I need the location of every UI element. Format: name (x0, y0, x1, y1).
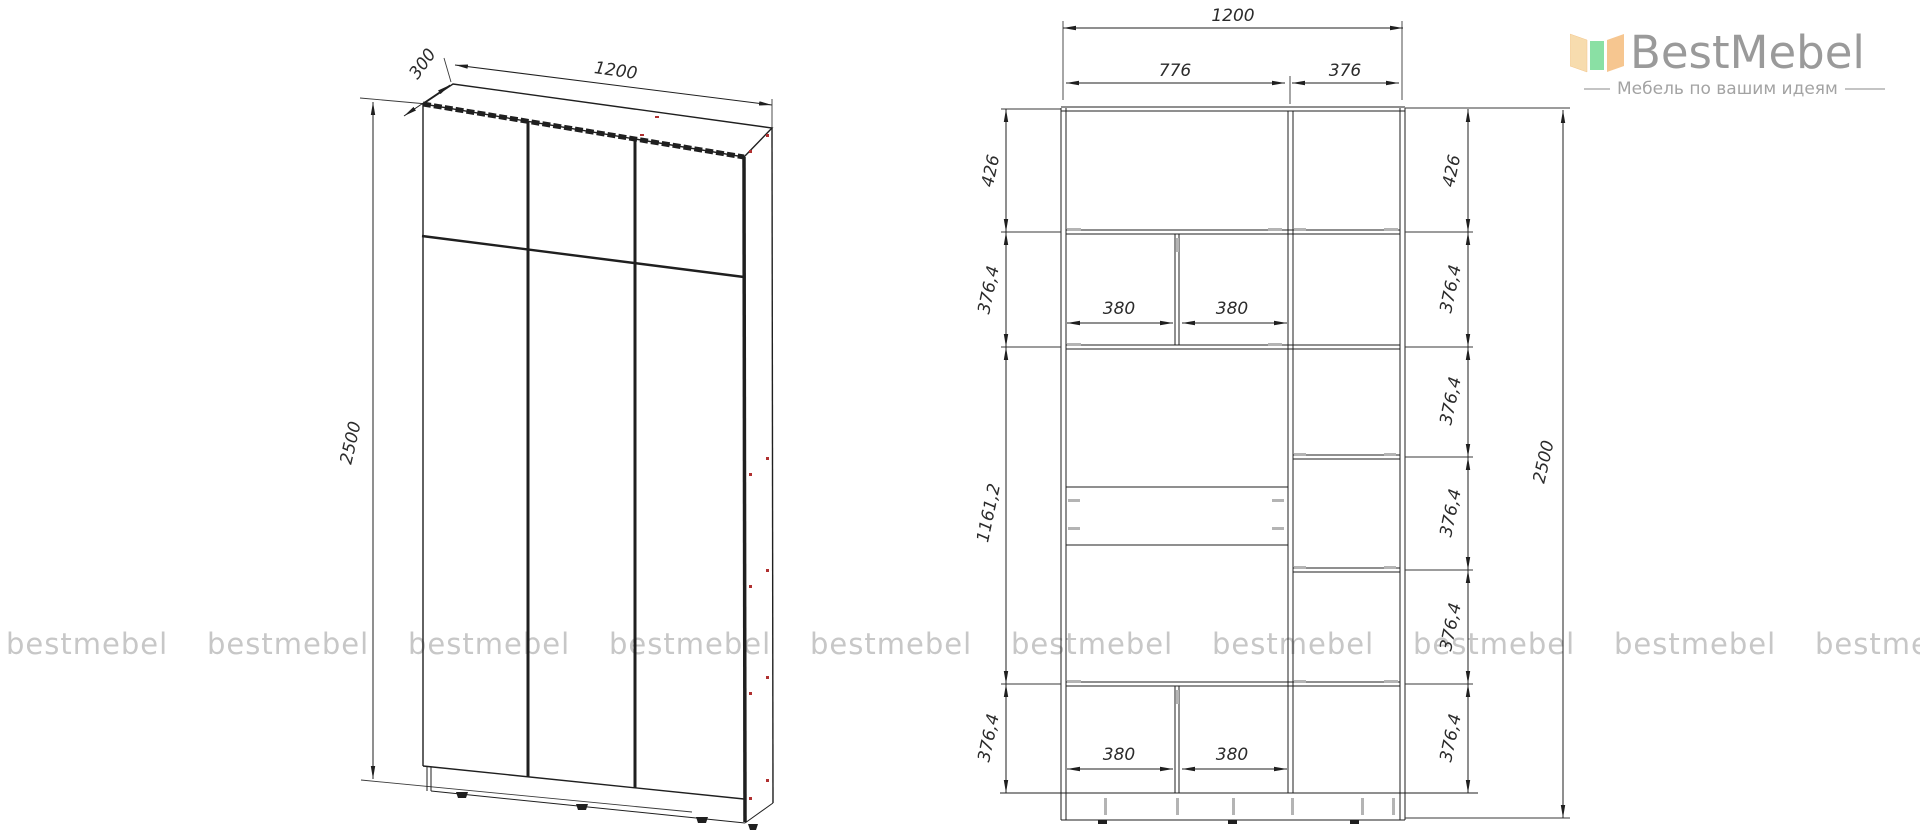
foot (1350, 820, 1359, 824)
dim-total-width: 1200 (1211, 6, 1254, 26)
tagline-dash (1584, 88, 1610, 90)
dim-right-h3: 376,4 (1436, 375, 1466, 427)
dim-left-h3: 1161,2 (973, 482, 1005, 544)
dim-depth: 300 (405, 45, 440, 83)
wardrobe-technical-drawing: 300 1200 2500 (0, 0, 1920, 834)
tagline-dash (1845, 88, 1885, 90)
dim-lower-cell-2: 380 (1216, 745, 1248, 765)
foot (748, 824, 758, 830)
foot (456, 792, 468, 798)
dim-right-h5: 376,4 (1436, 601, 1466, 653)
dim-height: 2500 (337, 420, 366, 467)
dim-width: 1200 (593, 58, 639, 84)
dim-right-h4: 376,4 (1436, 487, 1466, 539)
front-view: 1200 776 376 426 376,4 1161,2 376,4 426 … (973, 6, 1570, 824)
dim-left-h4: 376,4 (974, 712, 1004, 764)
dim-right-h1: 426 (1439, 153, 1465, 189)
dim-left-h2: 376,4 (974, 264, 1004, 316)
foot (696, 817, 708, 823)
hardware-marks (640, 116, 769, 800)
foot (1228, 820, 1237, 824)
dim-right-width: 376 (1329, 61, 1362, 81)
dim-left-width: 776 (1159, 61, 1192, 81)
mezzanine-divider (422, 236, 744, 277)
logo-icon (1570, 33, 1624, 73)
dim-right-h2: 376,4 (1436, 263, 1466, 315)
drawing-page: bestmebel bestmebel bestmebel bestmebel … (0, 0, 1920, 834)
dim-right-h6: 376,4 (1436, 712, 1466, 764)
brand-logo: BestMebel Мебель по вашим идеям (1570, 30, 1890, 99)
brand-name: BestMebel (1630, 30, 1865, 75)
dim-lower-cell-1: 380 (1103, 745, 1135, 765)
foot (1098, 820, 1107, 824)
foot (576, 804, 588, 810)
dim-upper-cell-2: 380 (1216, 299, 1248, 319)
perspective-view: 300 1200 2500 (337, 45, 773, 830)
brand-tagline: Мебель по вашим идеям (1617, 79, 1838, 99)
top-panel (423, 84, 772, 157)
dim-left-h1: 426 (978, 153, 1004, 189)
dim-upper-cell-1: 380 (1103, 299, 1135, 319)
dim-total-height: 2500 (1530, 439, 1559, 486)
